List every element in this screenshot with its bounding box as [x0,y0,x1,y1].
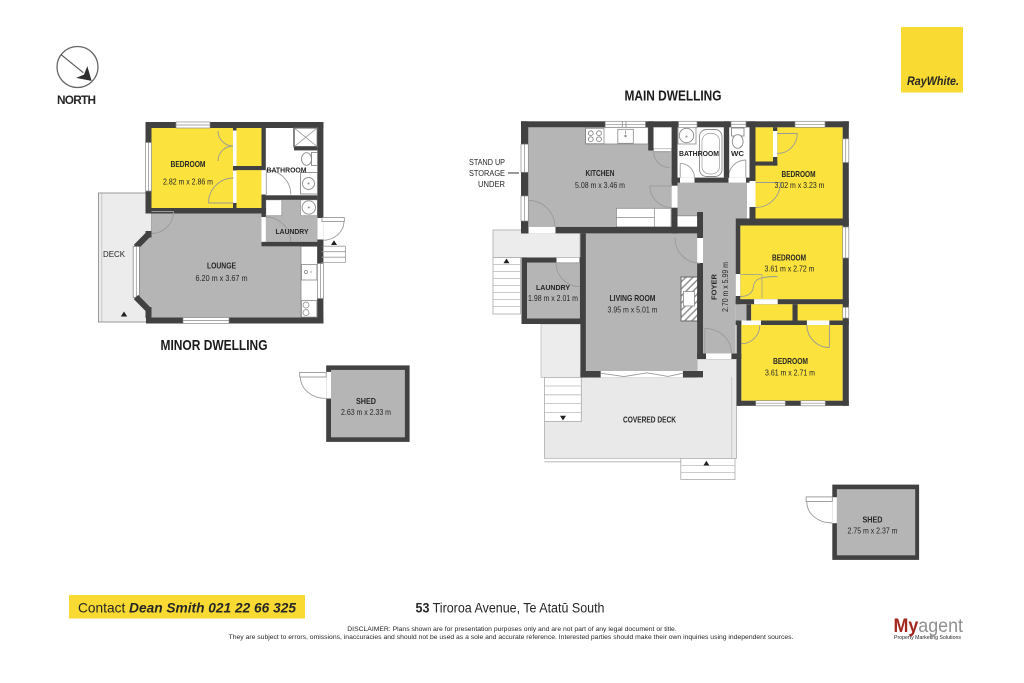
svg-text:NORTH: NORTH [57,93,96,107]
svg-text:SHED: SHED [356,397,376,406]
svg-text:2.70 m x 5.99 m: 2.70 m x 5.99 m [721,262,730,312]
svg-text:Property Marketing Solutions: Property Marketing Solutions [894,635,961,641]
svg-text:1.98 m x 2.01 m: 1.98 m x 2.01 m [528,294,578,303]
svg-text:They are subject to errors, om: They are subject to errors, omissions, i… [229,634,794,641]
svg-text:FOYER: FOYER [710,273,719,300]
svg-text:3.61 m x 2.71 m: 3.61 m x 2.71 m [765,369,815,378]
svg-text:LOUNGE: LOUNGE [207,262,236,271]
svg-text:3.61 m x 2.72 m: 3.61 m x 2.72 m [765,265,815,274]
svg-text:2.75 m x 2.37 m: 2.75 m x 2.37 m [848,527,898,536]
svg-text:UNDER: UNDER [478,180,505,189]
svg-text:STORAGE: STORAGE [469,169,505,178]
svg-text:DECK: DECK [103,250,126,259]
svg-text:BEDROOM: BEDROOM [772,254,806,263]
svg-text:LAUNDRY: LAUNDRY [276,227,309,236]
svg-text:2.63 m x 2.33 m: 2.63 m x 2.33 m [341,408,391,417]
svg-text:BATHROOM: BATHROOM [267,166,307,175]
svg-text:2.82 m x 2.86 m: 2.82 m x 2.86 m [163,178,213,187]
svg-text:Myagent: Myagent [894,615,964,637]
svg-text:LIVING ROOM: LIVING ROOM [610,294,656,303]
svg-text:BEDROOM: BEDROOM [773,357,808,366]
svg-text:BEDROOM: BEDROOM [171,160,206,169]
svg-text:6.20 m x 3.67 m: 6.20 m x 3.67 m [196,274,248,283]
svg-text:Contact Dean Smith 021 22 66 3: Contact Dean Smith 021 22 66 325 [78,600,296,615]
svg-text:BEDROOM: BEDROOM [782,170,816,179]
svg-text:3.02 m x 3.23 m: 3.02 m x 3.23 m [775,181,825,190]
svg-text:BATHROOM: BATHROOM [679,149,719,158]
svg-text:STAND UP: STAND UP [469,158,505,167]
svg-text:COVERED DECK: COVERED DECK [623,416,676,425]
svg-text:5.08 m x 3.46 m: 5.08 m x 3.46 m [575,181,625,190]
svg-text:DISCLAIMER: Plans shown are fo: DISCLAIMER: Plans shown are for presenta… [347,626,677,633]
svg-text:MAIN DWELLING: MAIN DWELLING [625,88,722,105]
svg-text:WC: WC [731,149,745,158]
svg-text:SHED: SHED [863,516,883,525]
svg-text:KITCHEN: KITCHEN [586,169,615,178]
svg-text:MINOR DWELLING: MINOR DWELLING [161,337,268,354]
svg-text:3.95 m x 5.01 m: 3.95 m x 5.01 m [608,306,658,315]
svg-text:53 Tiroroa Avenue, Te Atatū So: 53 Tiroroa Avenue, Te Atatū South [416,601,605,616]
svg-text:LAUNDRY: LAUNDRY [536,283,570,292]
svg-text:RayWhite.: RayWhite. [907,74,959,88]
